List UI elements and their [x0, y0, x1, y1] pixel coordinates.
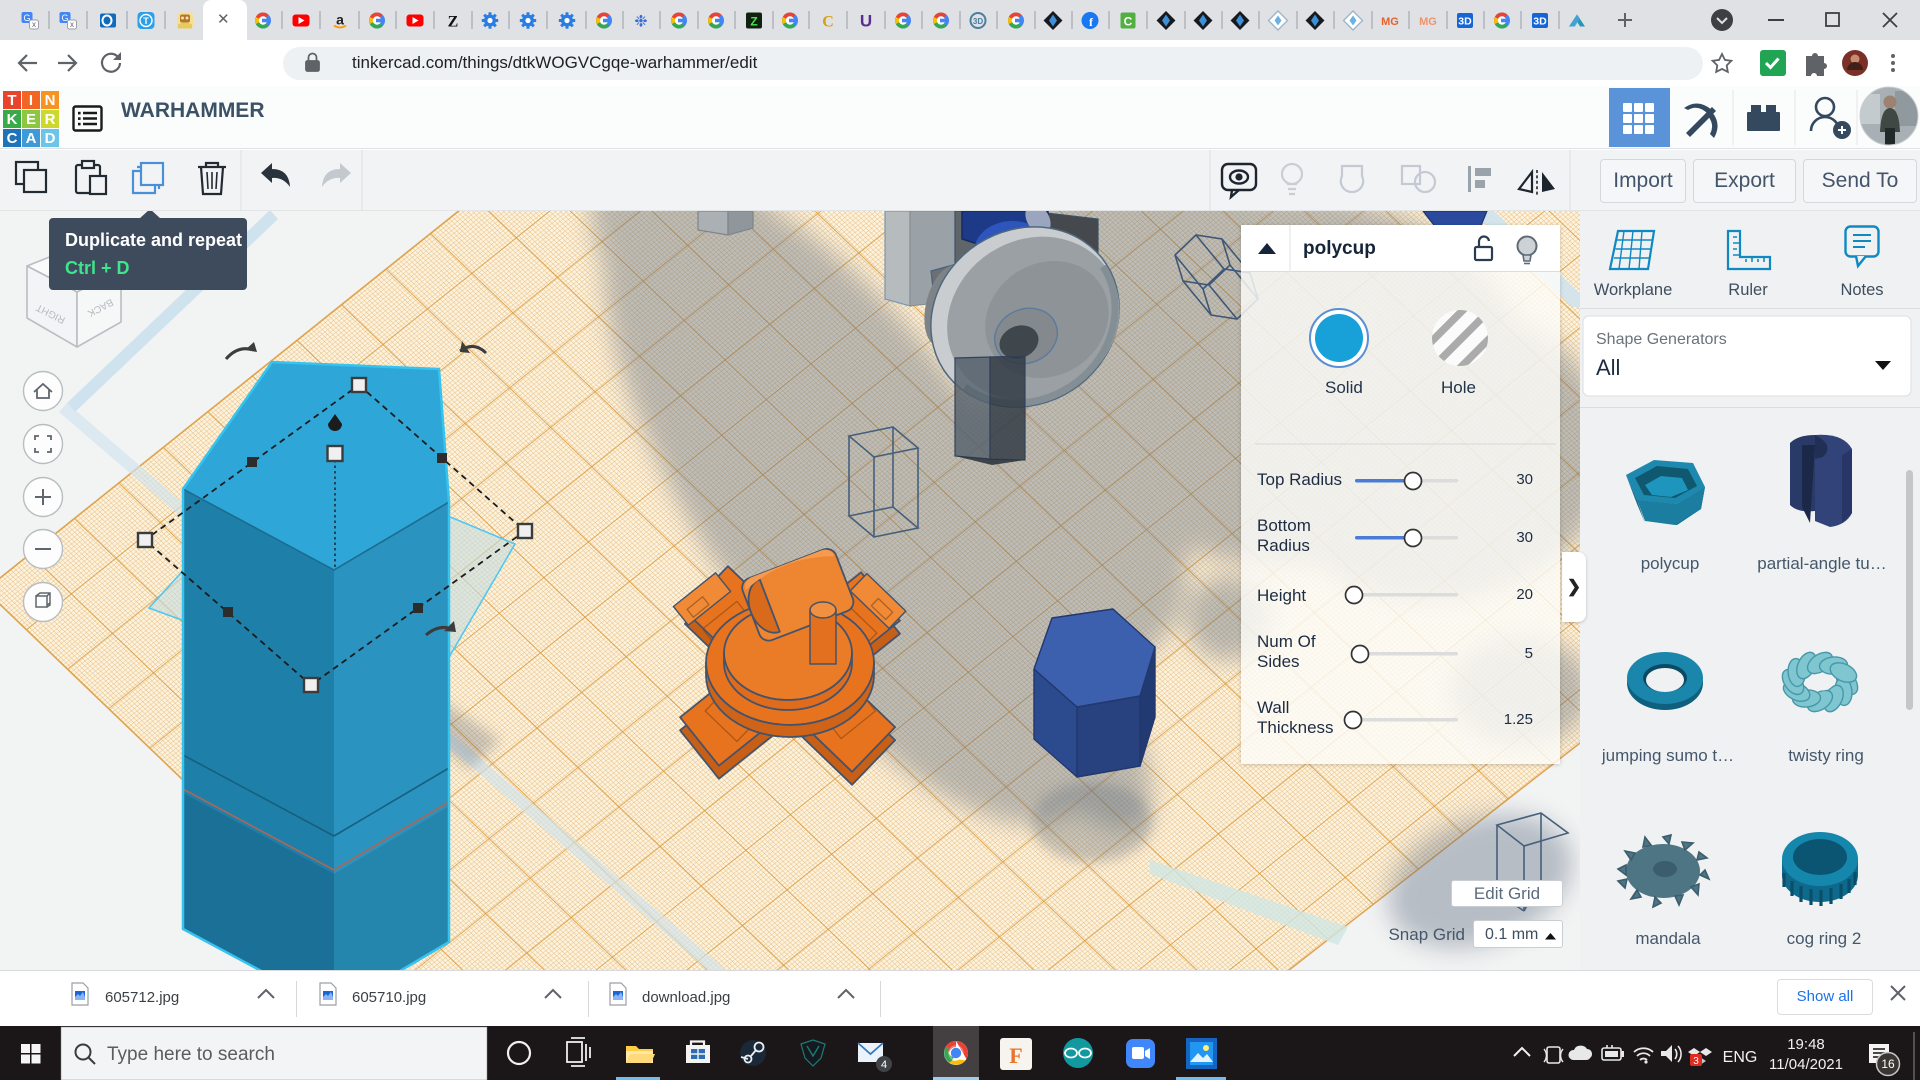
svg-text:C: C: [7, 130, 18, 147]
svg-text:mandala: mandala: [1635, 929, 1701, 948]
svg-text:3: 3: [1693, 1056, 1699, 1067]
svg-text:C: C: [822, 14, 834, 31]
svg-text:Ruler: Ruler: [1728, 281, 1768, 299]
svg-text:I: I: [29, 92, 33, 109]
svg-text:T: T: [7, 92, 16, 109]
svg-text:x: x: [32, 20, 36, 29]
svg-text:K: K: [7, 111, 18, 128]
svg-text:ENG: ENG: [1723, 1049, 1758, 1066]
svg-text:Workplane: Workplane: [1594, 281, 1673, 299]
svg-text:x: x: [70, 20, 74, 29]
svg-text:C: C: [1124, 15, 1133, 29]
svg-text:E: E: [26, 111, 36, 128]
svg-text:11/04/2021: 11/04/2021: [1769, 1056, 1843, 1073]
svg-text:3D: 3D: [1458, 16, 1472, 28]
svg-text:D: D: [45, 130, 56, 147]
svg-text:F: F: [1009, 1043, 1022, 1068]
svg-text:4: 4: [881, 1059, 887, 1071]
svg-text:polycup: polycup: [1641, 554, 1700, 573]
svg-text:Z: Z: [448, 14, 459, 31]
svg-text:T: T: [143, 16, 149, 26]
svg-text:3D: 3D: [973, 17, 983, 26]
svg-text:twisty ring: twisty ring: [1788, 746, 1864, 765]
svg-text:MG: MG: [1419, 16, 1437, 28]
svg-text:cog ring 2: cog ring 2: [1787, 929, 1862, 948]
svg-text:Notes: Notes: [1840, 281, 1883, 299]
svg-text:Type here to search: Type here to search: [107, 1044, 275, 1065]
svg-text:MG: MG: [1381, 16, 1399, 28]
svg-text:All: All: [1596, 355, 1620, 380]
svg-text:3D: 3D: [1533, 16, 1547, 28]
svg-text:Shape Generators: Shape Generators: [1596, 331, 1727, 348]
svg-text:U: U: [860, 12, 872, 31]
svg-text:16: 16: [1881, 1057, 1895, 1071]
svg-text:jumping sumo t…: jumping sumo t…: [1601, 746, 1734, 765]
svg-text:A: A: [26, 130, 37, 147]
svg-text:R: R: [45, 111, 56, 128]
svg-text:❉: ❉: [634, 14, 647, 31]
svg-text:partial-angle tu…: partial-angle tu…: [1757, 554, 1886, 573]
svg-text:Z: Z: [750, 15, 757, 29]
svg-text:19:48: 19:48: [1787, 1036, 1825, 1053]
svg-text:N: N: [45, 92, 56, 109]
svg-text:a: a: [336, 12, 344, 28]
